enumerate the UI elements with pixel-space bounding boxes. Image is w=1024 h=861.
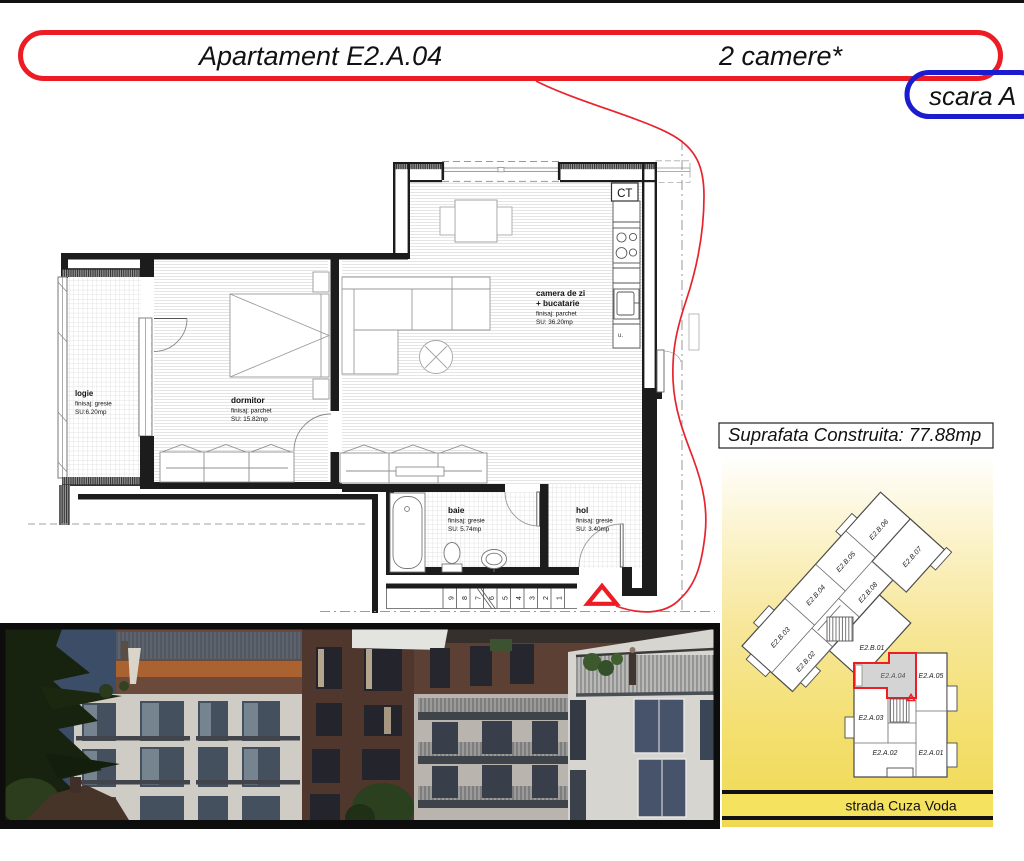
svg-text:camera de zi: camera de zi: [536, 289, 585, 298]
svg-text:Apartament E2.A.04: Apartament E2.A.04: [197, 41, 442, 71]
svg-text:finisaj: gresie: finisaj: gresie: [448, 518, 485, 525]
svg-text:SU: 36.20mp: SU: 36.20mp: [536, 319, 573, 326]
svg-text:finisaj: parchet: finisaj: parchet: [536, 311, 577, 318]
svg-text:scara A: scara A: [929, 81, 1016, 111]
svg-text:1: 1: [557, 596, 564, 600]
svg-text:4: 4: [516, 596, 523, 600]
svg-text:CT: CT: [617, 188, 632, 200]
svg-text:hol: hol: [576, 506, 588, 515]
svg-text:E2.A.02: E2.A.02: [873, 750, 898, 757]
svg-text:E2.A.04: E2.A.04: [881, 673, 906, 680]
svg-text:strada Cuza Voda: strada Cuza Voda: [845, 798, 957, 814]
svg-text:E2.A.01: E2.A.01: [919, 750, 944, 757]
svg-text:SU: 3.40mp: SU: 3.40mp: [576, 526, 610, 533]
svg-text:u.: u.: [618, 333, 623, 339]
svg-text:E2.A.03: E2.A.03: [859, 715, 884, 722]
svg-text:E2.A.05: E2.A.05: [919, 673, 944, 680]
svg-text:logie: logie: [75, 389, 94, 398]
svg-text:finisaj: gresie: finisaj: gresie: [75, 401, 112, 408]
svg-text:SU: 5.74mp: SU: 5.74mp: [448, 526, 482, 533]
svg-text:2: 2: [543, 596, 550, 600]
svg-text:finisaj: parchet: finisaj: parchet: [231, 408, 272, 415]
svg-text:+ bucatarie: + bucatarie: [536, 299, 580, 308]
svg-text:8: 8: [462, 596, 469, 600]
svg-text:2 camere*: 2 camere*: [718, 41, 844, 71]
svg-text:finisaj: gresie: finisaj: gresie: [576, 518, 613, 525]
svg-text:dormitor: dormitor: [231, 396, 265, 405]
svg-text:Suprafata Construita: 77.88mp: Suprafata Construita: 77.88mp: [728, 424, 981, 445]
svg-text:9: 9: [449, 596, 456, 600]
svg-text:SU:6.20mp: SU:6.20mp: [75, 409, 107, 416]
svg-text:7: 7: [476, 596, 483, 600]
svg-text:baie: baie: [448, 506, 465, 515]
svg-text:SU: 15.82mp: SU: 15.82mp: [231, 416, 268, 423]
svg-text:5: 5: [503, 596, 510, 600]
svg-text:6: 6: [489, 596, 496, 600]
svg-text:E2.B.01: E2.B.01: [860, 645, 885, 652]
svg-text:3: 3: [530, 596, 537, 600]
